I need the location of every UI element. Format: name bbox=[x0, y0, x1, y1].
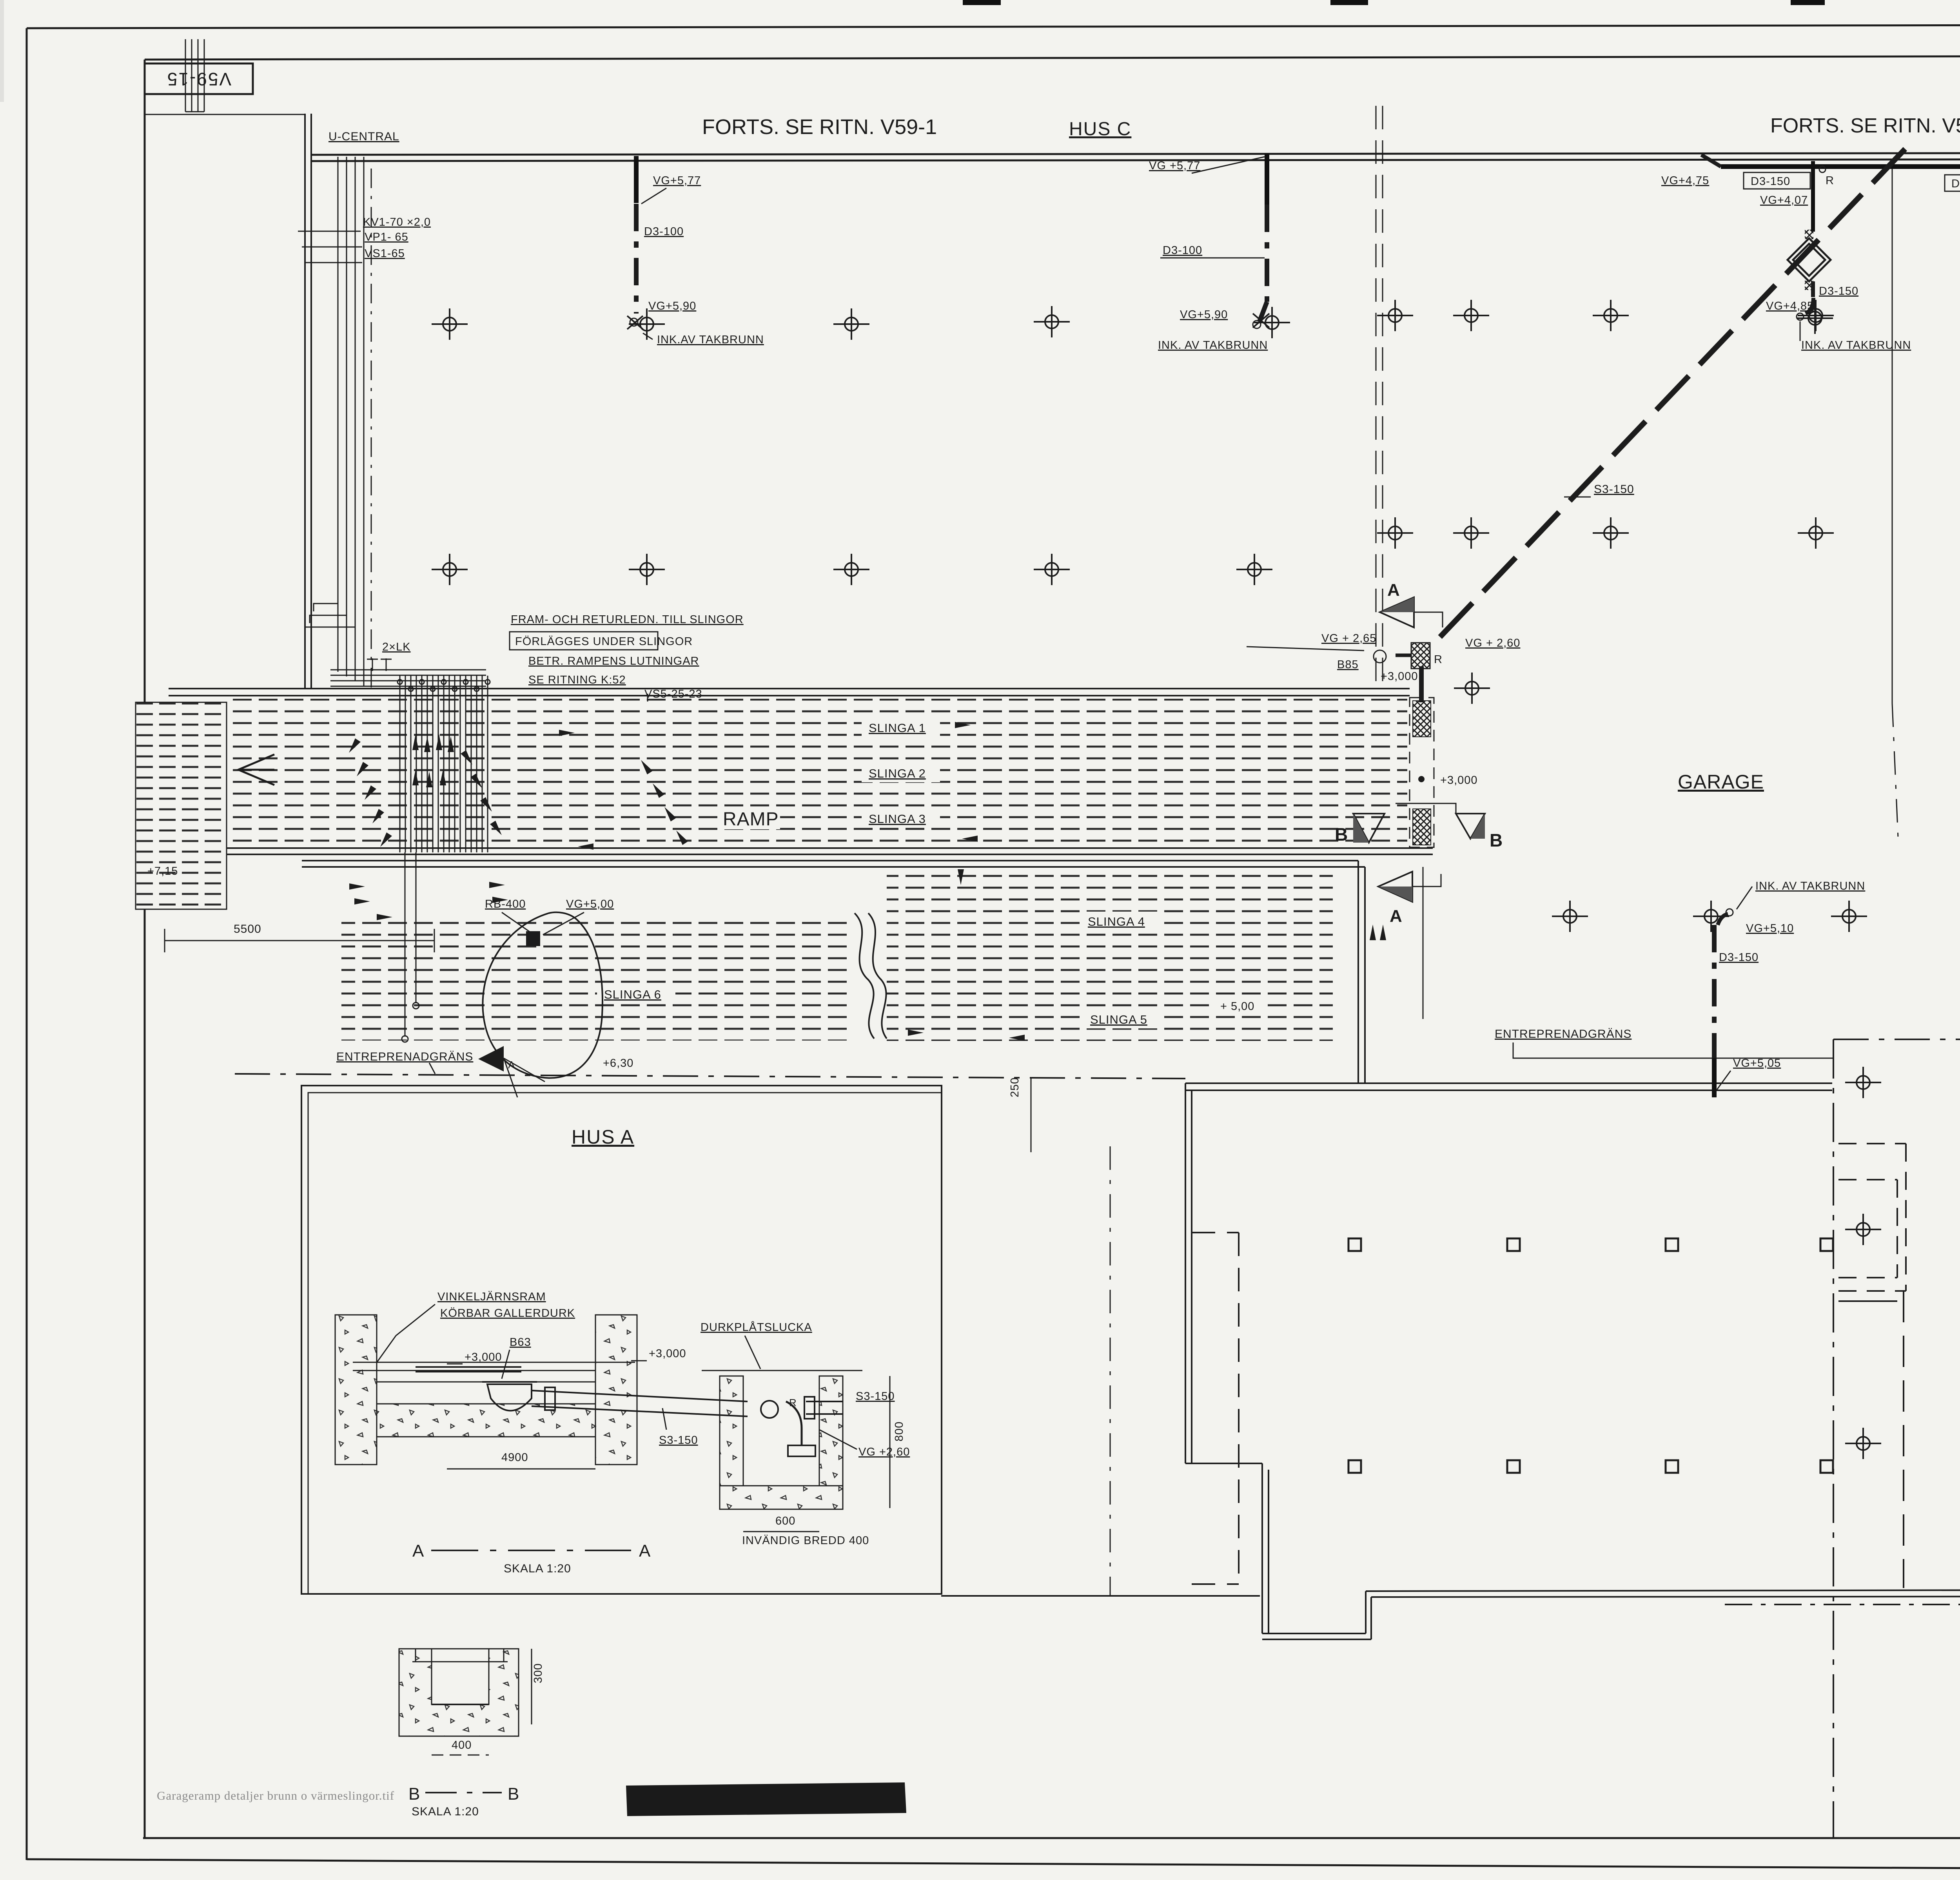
svg-text:S3-150: S3-150 bbox=[856, 1390, 895, 1403]
svg-text:A: A bbox=[1387, 580, 1400, 600]
svg-text:S3-150: S3-150 bbox=[1594, 483, 1634, 496]
svg-text:RAMP: RAMP bbox=[723, 809, 779, 830]
svg-text:HUS A: HUS A bbox=[572, 1126, 634, 1148]
svg-text:600: 600 bbox=[775, 1515, 795, 1527]
svg-text:HUS C: HUS C bbox=[1069, 119, 1131, 140]
svg-text:VS5-25-23: VS5-25-23 bbox=[644, 688, 702, 700]
svg-text:S3-150: S3-150 bbox=[659, 1434, 698, 1447]
svg-text:INK.AV TAKBRUNN: INK.AV TAKBRUNN bbox=[657, 334, 764, 346]
svg-text:DURKPLÅTSLUCKA: DURKPLÅTSLUCKA bbox=[701, 1321, 812, 1334]
svg-text:4900: 4900 bbox=[501, 1451, 528, 1464]
svg-text:B63: B63 bbox=[510, 1336, 531, 1349]
svg-text:+3,000: +3,000 bbox=[465, 1351, 502, 1363]
svg-text:VG + 2,65: VG + 2,65 bbox=[1321, 632, 1376, 645]
svg-text:250: 250 bbox=[1009, 1077, 1021, 1097]
svg-text:D3-100: D3-100 bbox=[644, 225, 684, 238]
svg-text:VG+5,90: VG+5,90 bbox=[1180, 308, 1228, 321]
svg-text:D3-150: D3-150 bbox=[1951, 178, 1960, 190]
svg-text:400: 400 bbox=[452, 1739, 472, 1751]
svg-text:SLINGA 1: SLINGA 1 bbox=[869, 721, 926, 735]
svg-text:FORTS. SE RITN. V59-2: FORTS. SE RITN. V59-2 bbox=[1770, 114, 1960, 137]
svg-text:INVÄNDIG BREDD 400: INVÄNDIG BREDD 400 bbox=[742, 1534, 869, 1547]
svg-text:B: B bbox=[1490, 830, 1503, 850]
svg-text:V59-15: V59-15 bbox=[166, 69, 231, 89]
svg-text:B: B bbox=[508, 1784, 519, 1804]
svg-text:VG + 2,60: VG + 2,60 bbox=[1465, 637, 1520, 649]
svg-text:2×LK: 2×LK bbox=[382, 641, 411, 653]
svg-text:+3,000: +3,000 bbox=[1381, 670, 1418, 683]
svg-text:+3,000: +3,000 bbox=[649, 1347, 686, 1360]
svg-text:INK. AV TAKBRUNN: INK. AV TAKBRUNN bbox=[1801, 339, 1911, 352]
svg-text:KÖRBAR GALLERDURK: KÖRBAR GALLERDURK bbox=[440, 1307, 575, 1320]
svg-text:U-CENTRAL: U-CENTRAL bbox=[328, 130, 399, 143]
svg-text:B85: B85 bbox=[1337, 658, 1359, 671]
svg-text:D3-150: D3-150 bbox=[1819, 285, 1858, 297]
svg-text:A: A bbox=[508, 1059, 515, 1071]
svg-text:800: 800 bbox=[893, 1421, 906, 1441]
svg-text:VINKELJÄRNSRAM: VINKELJÄRNSRAM bbox=[437, 1291, 546, 1303]
svg-text:A: A bbox=[412, 1541, 424, 1561]
svg-text:B: B bbox=[1335, 824, 1348, 845]
svg-text:ENTREPRENADGRÄNS: ENTREPRENADGRÄNS bbox=[336, 1050, 473, 1063]
svg-text:FRAM- OCH RETURLEDN. TILL SLIN: FRAM- OCH RETURLEDN. TILL SLINGOR bbox=[511, 613, 744, 626]
svg-text:+7,15: +7,15 bbox=[147, 865, 178, 877]
svg-text:+ 5,00: + 5,00 bbox=[1220, 1000, 1254, 1013]
svg-text:R: R bbox=[789, 1397, 797, 1409]
svg-text:INK. AV TAKBRUNN: INK. AV TAKBRUNN bbox=[1158, 339, 1268, 352]
svg-text:5500: 5500 bbox=[234, 923, 261, 935]
svg-text:VG+4,85: VG+4,85 bbox=[1766, 300, 1814, 312]
svg-text:VG+5,90: VG+5,90 bbox=[648, 300, 696, 312]
svg-text:D3-150: D3-150 bbox=[1751, 175, 1790, 188]
svg-text:SKALA 1:20: SKALA 1:20 bbox=[412, 1805, 479, 1818]
svg-text:VG +5,77: VG +5,77 bbox=[1149, 160, 1200, 172]
svg-text:SKALA 1:20: SKALA 1:20 bbox=[504, 1562, 571, 1575]
svg-text:SLINGA 3: SLINGA 3 bbox=[869, 812, 926, 826]
svg-text:R: R bbox=[1434, 653, 1443, 666]
svg-text:VG+5,10: VG+5,10 bbox=[1746, 922, 1794, 935]
svg-text:SLINGA 2: SLINGA 2 bbox=[869, 767, 926, 780]
svg-text:SLINGA 4: SLINGA 4 bbox=[1088, 915, 1145, 928]
svg-text:VG+4,75: VG+4,75 bbox=[1661, 174, 1709, 187]
svg-text:+6,30: +6,30 bbox=[603, 1057, 633, 1070]
svg-text:FÖRLÄGGES UNDER SLINGOR: FÖRLÄGGES UNDER SLINGOR bbox=[515, 635, 693, 648]
svg-text:300: 300 bbox=[532, 1663, 544, 1683]
svg-text:D3-100: D3-100 bbox=[1163, 244, 1202, 257]
svg-text:ENTREPRENADGRÄNS: ENTREPRENADGRÄNS bbox=[1495, 1028, 1632, 1041]
svg-text:VS1-65: VS1-65 bbox=[365, 247, 405, 260]
svg-text:+3,000: +3,000 bbox=[1440, 774, 1478, 787]
svg-text:VG+5,00: VG+5,00 bbox=[566, 898, 614, 910]
svg-text:GARAGE: GARAGE bbox=[1678, 771, 1764, 793]
svg-text:D3-150: D3-150 bbox=[1719, 951, 1759, 964]
svg-text:KV1-70 ×2,0: KV1-70 ×2,0 bbox=[363, 216, 431, 228]
svg-text:SLINGA 5: SLINGA 5 bbox=[1090, 1013, 1147, 1026]
svg-text:VG+5,05: VG+5,05 bbox=[1733, 1057, 1781, 1070]
svg-text:VG+4,07: VG+4,07 bbox=[1760, 194, 1808, 207]
svg-text:A: A bbox=[639, 1541, 651, 1561]
svg-text:INK. AV TAKBRUNN: INK. AV TAKBRUNN bbox=[1755, 880, 1865, 892]
svg-text:SLINGA 6: SLINGA 6 bbox=[604, 988, 661, 1001]
svg-text:VG+5,77: VG+5,77 bbox=[653, 174, 701, 187]
svg-text:SE RITNING K:52: SE RITNING K:52 bbox=[528, 674, 626, 686]
svg-text:VP1- 65: VP1- 65 bbox=[365, 231, 408, 243]
svg-text:BETR. RAMPENS LUTNINGAR: BETR. RAMPENS LUTNINGAR bbox=[528, 655, 699, 667]
svg-text:B: B bbox=[408, 1784, 420, 1804]
svg-text:A: A bbox=[1390, 906, 1403, 926]
svg-text:Garageramp detaljer brunn o vä: Garageramp detaljer brunn o värmeslingor… bbox=[157, 1789, 394, 1802]
svg-text:FORTS. SE RITN. V59-1: FORTS. SE RITN. V59-1 bbox=[702, 115, 937, 139]
svg-text:VG +2,60: VG +2,60 bbox=[858, 1446, 910, 1458]
svg-text:RB-400: RB-400 bbox=[485, 898, 526, 910]
svg-text:R: R bbox=[1826, 174, 1834, 187]
